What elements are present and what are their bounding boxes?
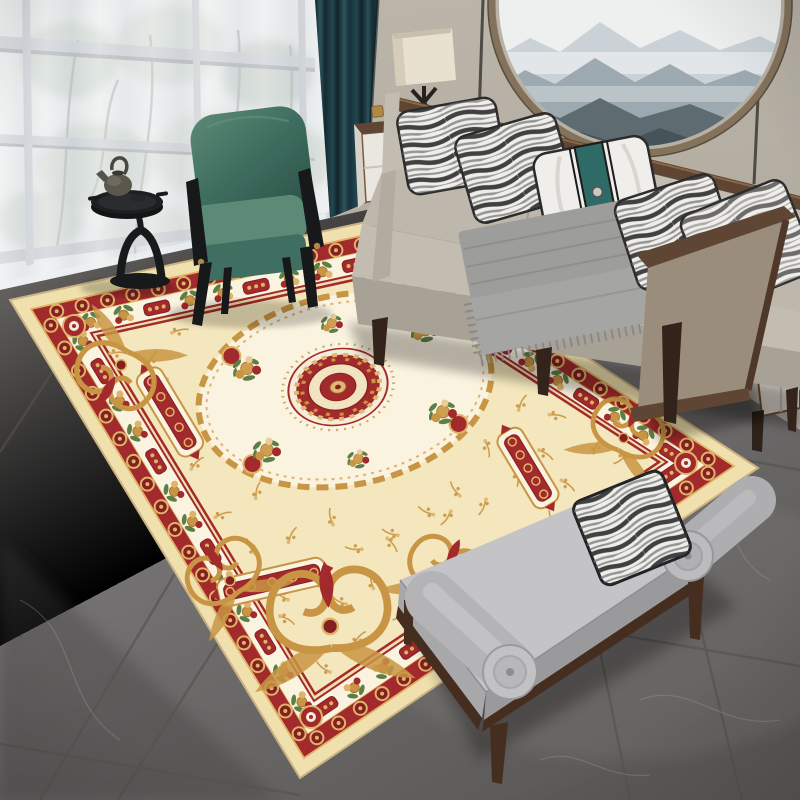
scene-canvas <box>0 0 800 800</box>
living-room-photo <box>0 0 800 800</box>
vignette <box>0 0 800 800</box>
